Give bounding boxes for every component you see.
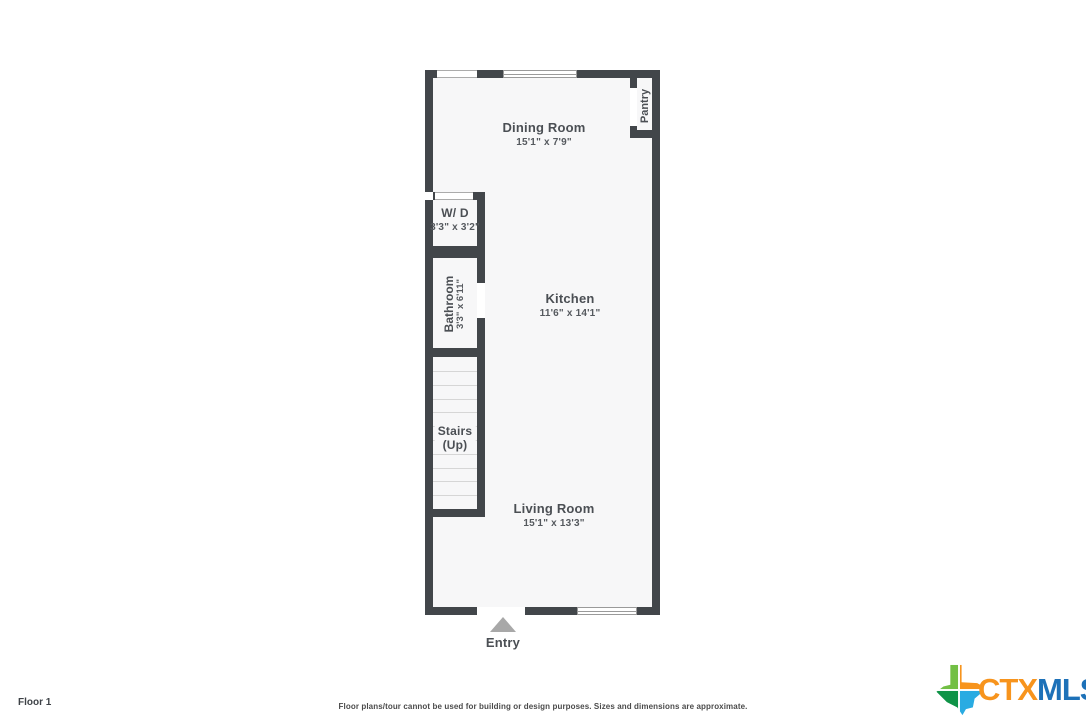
stair-tread-line bbox=[433, 481, 477, 482]
window-bottom-right bbox=[577, 607, 637, 615]
entry-door-opening bbox=[477, 607, 525, 615]
wall-wd-bathroom-divider bbox=[425, 246, 485, 258]
window-top-left bbox=[437, 70, 477, 78]
room-label-dining: Dining Room 15'1" x 7'9" bbox=[502, 121, 585, 148]
floorplan: Dining Room 15'1" x 7'9" Pantry W/ D 3'3… bbox=[0, 0, 1086, 724]
window-top-center bbox=[503, 70, 577, 78]
stair-tread-line bbox=[433, 468, 477, 469]
floor-area bbox=[425, 70, 660, 615]
room-label-bathroom: Bathroom 3'3" x 6'11" bbox=[443, 276, 467, 333]
pantry-name: Pantry bbox=[639, 89, 651, 123]
left-wall-gap bbox=[425, 192, 433, 200]
logo-ctx-text: CTX bbox=[978, 672, 1037, 707]
entry-arrow-icon bbox=[490, 617, 516, 632]
kitchen-dims: 11'6" x 14'1" bbox=[540, 308, 601, 320]
texas-quadrant-bottom-left bbox=[933, 691, 958, 716]
room-label-wd: W/ D 3'3" x 3'2" bbox=[430, 207, 480, 233]
living-room-name: Living Room bbox=[514, 502, 595, 517]
bathroom-dims: 3'3" x 6'11" bbox=[456, 279, 466, 329]
stairs-direction: (Up) bbox=[438, 439, 473, 453]
bathroom-door-opening bbox=[477, 283, 485, 318]
wd-dims: 3'3" x 3'2" bbox=[430, 222, 480, 234]
living-room-dims: 15'1" x 13'3" bbox=[514, 518, 595, 530]
wall-right bbox=[652, 70, 660, 615]
pantry-door-opening bbox=[630, 88, 637, 126]
floor-label: Floor 1 bbox=[18, 697, 51, 708]
entry-label: Entry bbox=[486, 636, 520, 651]
wd-name: W/ D bbox=[430, 207, 480, 221]
room-label-living: Living Room 15'1" x 13'3" bbox=[514, 502, 595, 529]
stairs-name: Stairs bbox=[438, 425, 473, 439]
texas-quadrant-top-left bbox=[933, 664, 958, 689]
dining-room-dims: 15'1" x 7'9" bbox=[502, 137, 585, 149]
ctxmls-logo: CTXMLS bbox=[933, 664, 1086, 716]
kitchen-name: Kitchen bbox=[540, 292, 601, 307]
wall-pantry-bottom bbox=[630, 130, 660, 138]
disclaimer-text: Floor plans/tour cannot be used for buil… bbox=[339, 702, 748, 711]
stair-tread-line bbox=[433, 399, 477, 400]
stair-tread-line bbox=[433, 371, 477, 372]
room-label-kitchen: Kitchen 11'6" x 14'1" bbox=[540, 292, 601, 319]
wall-stairs-bottom bbox=[425, 509, 485, 517]
entry-name: Entry bbox=[486, 636, 520, 651]
stair-tread-line bbox=[433, 385, 477, 386]
room-label-stairs: Stairs (Up) bbox=[435, 424, 476, 454]
wall-bathroom-bottom bbox=[425, 348, 485, 357]
stair-tread-line bbox=[433, 454, 477, 455]
dining-room-name: Dining Room bbox=[502, 121, 585, 136]
stair-tread-line bbox=[433, 495, 477, 496]
logo-mls-text: MLS bbox=[1037, 672, 1086, 707]
logo-wordmark: CTXMLS bbox=[978, 672, 1086, 708]
room-label-pantry: Pantry bbox=[639, 89, 651, 123]
stair-tread-line bbox=[433, 412, 477, 413]
wd-door-opening bbox=[435, 192, 473, 200]
wall-left bbox=[425, 70, 433, 615]
